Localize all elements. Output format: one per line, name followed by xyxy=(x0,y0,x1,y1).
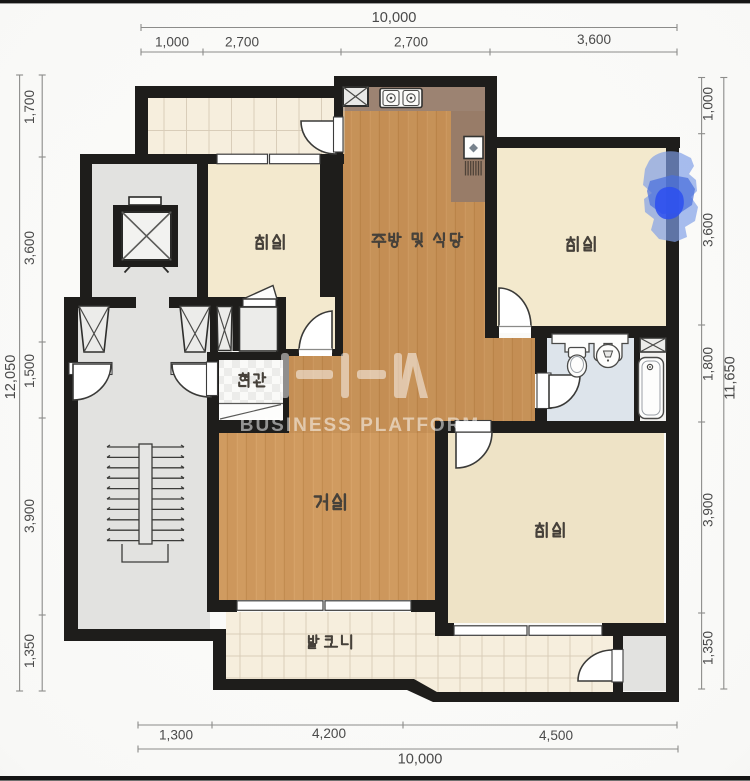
svg-text:1,000: 1,000 xyxy=(155,35,189,50)
svg-text:3,600: 3,600 xyxy=(22,231,37,265)
svg-text:1,300: 1,300 xyxy=(159,728,193,743)
svg-text:10,000: 10,000 xyxy=(398,752,443,768)
svg-text:1,350: 1,350 xyxy=(22,634,37,668)
svg-text:2,700: 2,700 xyxy=(394,35,428,50)
svg-text:3,900: 3,900 xyxy=(22,499,37,533)
svg-text:3,900: 3,900 xyxy=(701,493,716,527)
svg-text:3,600: 3,600 xyxy=(577,32,611,47)
svg-text:1,800: 1,800 xyxy=(701,347,716,381)
svg-text:2,700: 2,700 xyxy=(225,35,259,50)
svg-text:1,700: 1,700 xyxy=(22,90,37,124)
svg-text:4,200: 4,200 xyxy=(312,726,346,741)
svg-text:10,000: 10,000 xyxy=(372,10,417,26)
svg-text:BUSINESS PLATFORM: BUSINESS PLATFORM xyxy=(240,415,481,436)
svg-text:1,350: 1,350 xyxy=(701,631,716,665)
svg-text:4,500: 4,500 xyxy=(539,728,573,743)
svg-text:3,600: 3,600 xyxy=(701,213,716,247)
svg-text:1,500: 1,500 xyxy=(22,354,37,388)
svg-text:11,650: 11,650 xyxy=(723,356,739,400)
svg-text:12,050: 12,050 xyxy=(3,355,19,400)
svg-text:1,000: 1,000 xyxy=(701,87,716,121)
